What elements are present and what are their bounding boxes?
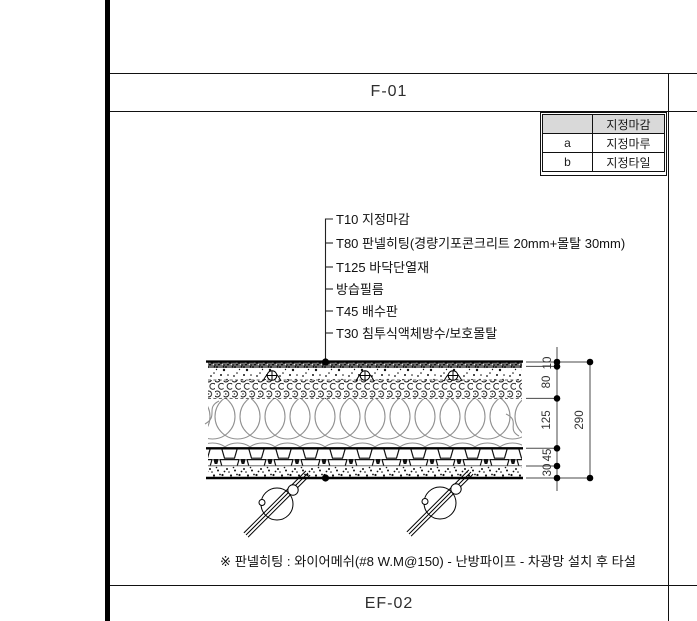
layer-foam-concrete [208, 380, 522, 398]
leader-node-bottom [322, 474, 329, 481]
dim-125: 125 [541, 410, 553, 429]
pipe-sleeve-icon [244, 471, 310, 537]
layer-drain-board-t45 [208, 449, 522, 466]
dim-80: 80 [541, 376, 553, 389]
floor-section-drawing: 10 80 125 45 30 290 [0, 0, 697, 621]
layer-insulation-t125 [208, 399, 522, 448]
leader-node-top [322, 358, 329, 365]
dim-10: 10 [542, 357, 554, 370]
pipe-sleeve-icon [407, 470, 473, 536]
layer-finish-t10 [208, 363, 522, 369]
dim-30: 30 [542, 464, 554, 477]
layer-waterproof-mortar-t30 [208, 466, 522, 477]
dimension-labels: 10 80 125 45 30 290 [541, 357, 586, 477]
dim-45: 45 [542, 449, 554, 462]
dim-290: 290 [574, 410, 586, 429]
